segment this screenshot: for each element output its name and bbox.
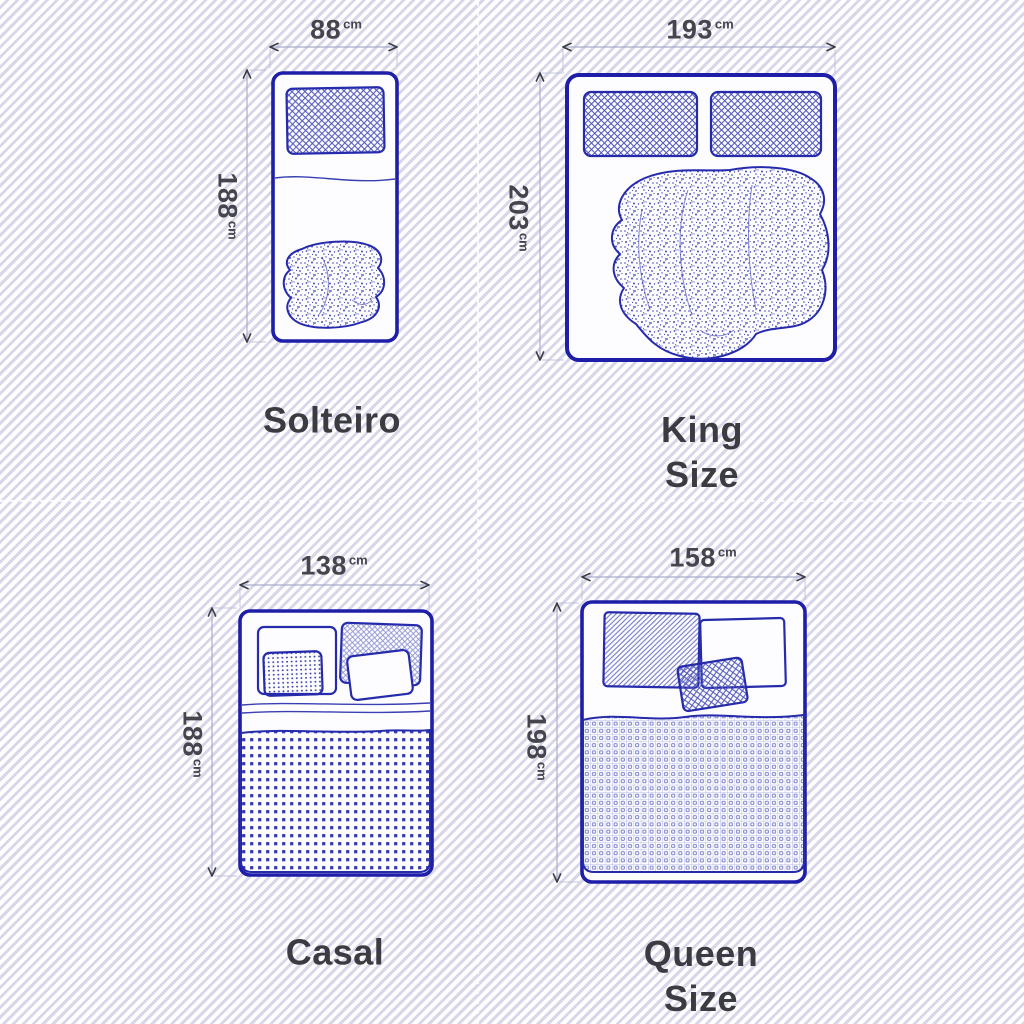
casal-blanket [241,730,430,872]
queen-bed-illustration [582,602,805,882]
king-caption: King Size [661,407,743,497]
casal-pillow-front-right [347,649,414,700]
solteiro-width-value: 88 [310,17,341,44]
casal-caption: Casal [286,930,385,975]
horizontal-divider-line [0,500,1024,502]
king-pillow-right [711,92,821,156]
queen-width-unit: cm [718,546,737,559]
king-pillow-left [584,92,697,156]
solteiro-pillow [286,87,384,154]
king-width-dimension-line [563,43,835,73]
solteiro-width-label: 88 cm [310,17,362,44]
queen-width-value: 158 [669,545,716,572]
queen-length-dimension-line [553,603,579,882]
solteiro-width-unit: cm [343,18,362,31]
king-width-value: 193 [666,17,713,44]
queen-blanket [583,715,804,872]
queen-length-unit: cm [536,762,549,781]
casal-width-unit: cm [349,554,368,567]
queen-width-dimension-line [582,573,805,600]
king-length-label: 203 cm [505,184,532,251]
king-length-unit: cm [518,233,531,252]
bed-size-chart: 88 cm 188 cm 193 cm 203 cm 138 cm 188 cm… [0,0,1024,1024]
casal-width-dimension-line [240,581,429,607]
casal-length-label: 188 cm [179,710,206,777]
king-bed-illustration [567,75,835,360]
solteiro-length-unit: cm [227,221,240,240]
queen-pillow-small [677,657,748,712]
queen-caption: Queen Size [644,931,759,1021]
solteiro-length-value: 188 [214,172,241,219]
queen-width-label: 158 cm [669,545,736,572]
casal-length-unit: cm [192,759,205,778]
queen-length-value: 198 [523,713,550,760]
casal-pillow-front-left [263,651,322,696]
solteiro-bed-illustration [273,73,397,341]
casal-width-label: 138 cm [300,553,367,580]
casal-width-value: 138 [300,553,347,580]
casal-bed-illustration [240,611,432,875]
solteiro-length-label: 188 cm [214,172,241,239]
king-length-dimension-line [536,73,564,360]
solteiro-width-dimension-line [270,43,397,68]
king-width-unit: cm [715,18,734,31]
king-length-value: 203 [505,184,532,231]
casal-length-value: 188 [179,710,206,757]
queen-length-label: 198 cm [523,713,550,780]
vertical-divider-line [477,0,479,1024]
solteiro-blanket [284,242,384,328]
casal-length-dimension-line [208,608,237,876]
solteiro-caption: Solteiro [263,398,401,443]
bed-size-diagram [0,0,1024,1024]
king-width-label: 193 cm [666,17,733,44]
solteiro-length-dimension-line [243,70,266,342]
